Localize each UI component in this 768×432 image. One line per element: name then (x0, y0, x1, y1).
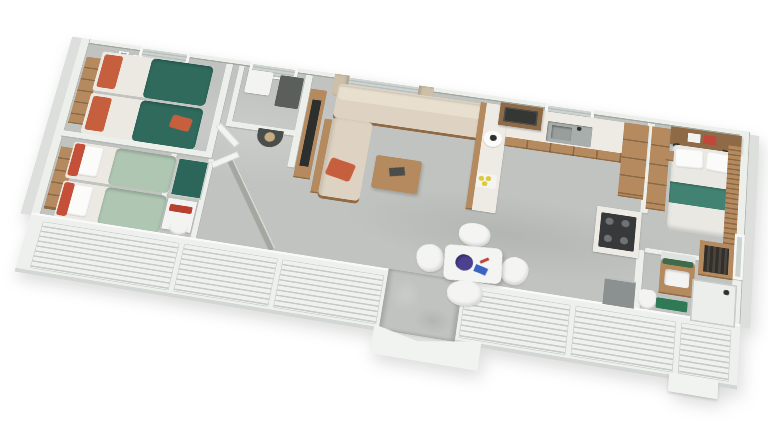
coffee-table-book (389, 167, 405, 176)
fruit-bowl-purple (455, 254, 474, 272)
red-pen (479, 257, 489, 263)
hanging-clothes (703, 245, 729, 275)
ensuite-wardrobe (698, 240, 735, 280)
floorplan-render (0, 0, 768, 432)
ensuite-vanity (658, 260, 695, 298)
wc-basin-unit (244, 69, 274, 95)
shower-cubicle (690, 279, 737, 328)
coffee-table (371, 155, 422, 195)
shower-head (723, 289, 729, 295)
nightstand-left (665, 150, 674, 161)
orange-pillow (96, 54, 123, 89)
utility-grey-box (602, 277, 636, 309)
dining-table (443, 244, 503, 285)
orange-pillow (84, 96, 112, 132)
pillow-left (676, 149, 704, 170)
sink-bowl (551, 125, 573, 141)
vanity-basin (664, 268, 690, 288)
gas-hob (598, 212, 636, 252)
blue-magazine (473, 264, 488, 276)
mobile-home-plan (15, 38, 750, 388)
red-towel (169, 204, 193, 214)
front-shutter-panel-6 (678, 322, 732, 381)
faucet (577, 126, 582, 131)
microwave (503, 107, 538, 126)
red-book (703, 135, 716, 146)
white-book (688, 133, 701, 144)
hob-unit (593, 206, 642, 259)
